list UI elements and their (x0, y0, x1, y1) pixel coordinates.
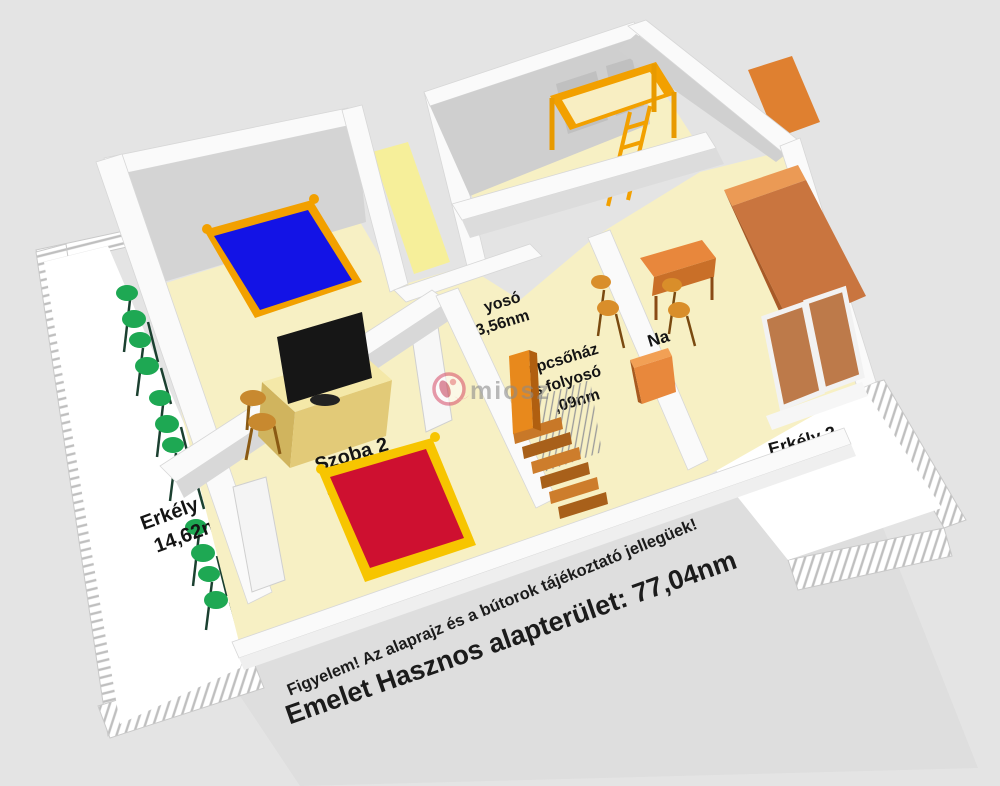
bed-post-knob (309, 194, 319, 204)
watermark: miosz (434, 374, 551, 405)
bed-post-knob (430, 432, 440, 442)
bed-post-knob (202, 224, 212, 234)
bed-post-knob (316, 464, 326, 474)
tv-stand (310, 394, 340, 406)
floorplan-3d-render: Erkély 1 14,62nm Erkély 2 8,44nm (0, 0, 1000, 786)
watermark-text: miosz (470, 377, 551, 405)
watermark-logo-dot (450, 379, 456, 385)
floorplan-svg: Erkély 1 14,62nm Erkély 2 8,44nm (0, 0, 1000, 786)
